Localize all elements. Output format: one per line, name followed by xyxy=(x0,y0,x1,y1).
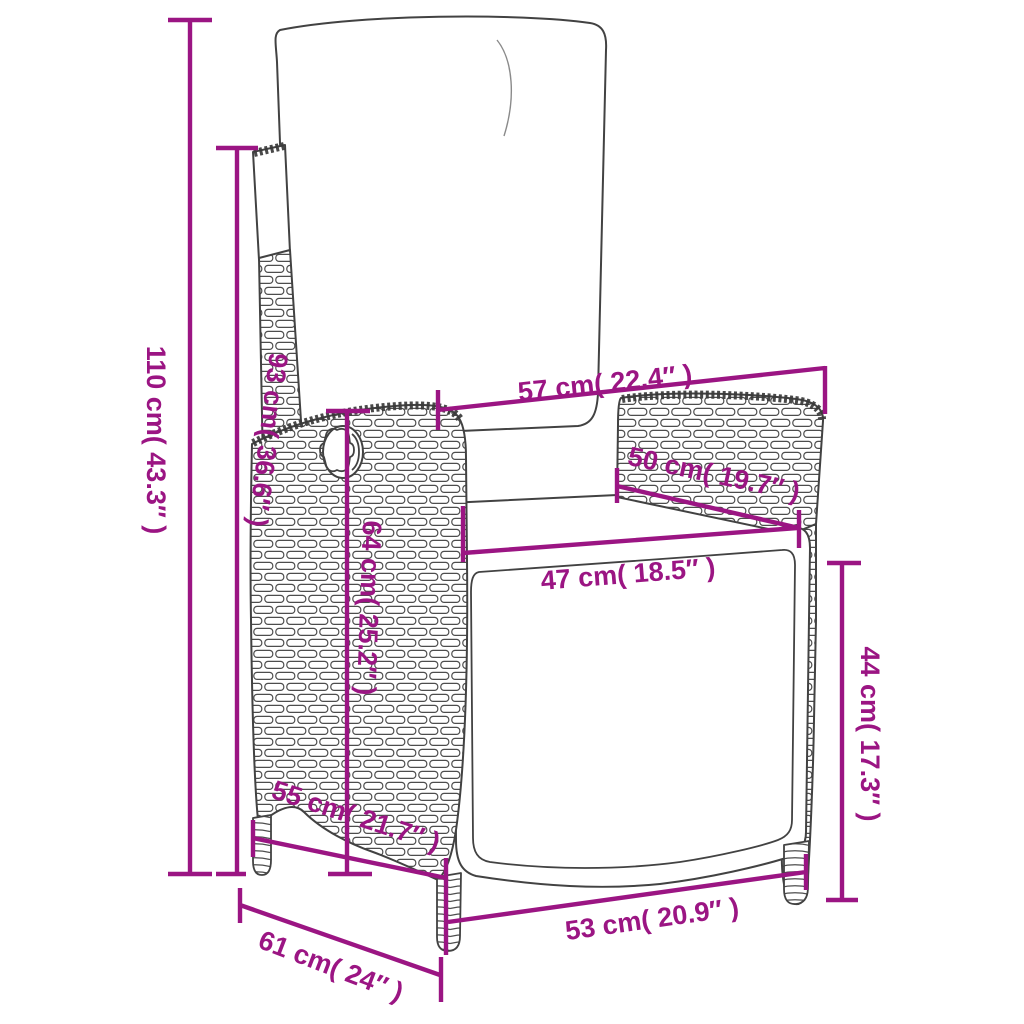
front-left-leg xyxy=(437,873,461,951)
diagram-canvas: 110 cm( 43.3″ ) 93 cm( 36.6″ ) 64 cm( 25… xyxy=(0,0,1024,1024)
backrest-frame-top xyxy=(253,145,290,260)
dim-seat-height: 44 cm( 17.3″ ) xyxy=(826,563,885,900)
dim-overall-height: 110 cm( 43.3″ ) xyxy=(141,20,212,874)
product-dimension-diagram: 110 cm( 43.3″ ) 93 cm( 36.6″ ) 64 cm( 25… xyxy=(0,0,1024,1024)
back-left-leg xyxy=(253,815,271,875)
dim-label-armrest-side-height: 64 cm( 25.2″ ) xyxy=(351,520,387,696)
dim-label-seat-height: 44 cm( 17.3″ ) xyxy=(855,646,885,821)
dim-label-overall-height: 110 cm( 43.3″ ) xyxy=(141,346,171,535)
dim-overall-depth: 61 cm( 24″ ) xyxy=(240,888,441,1007)
